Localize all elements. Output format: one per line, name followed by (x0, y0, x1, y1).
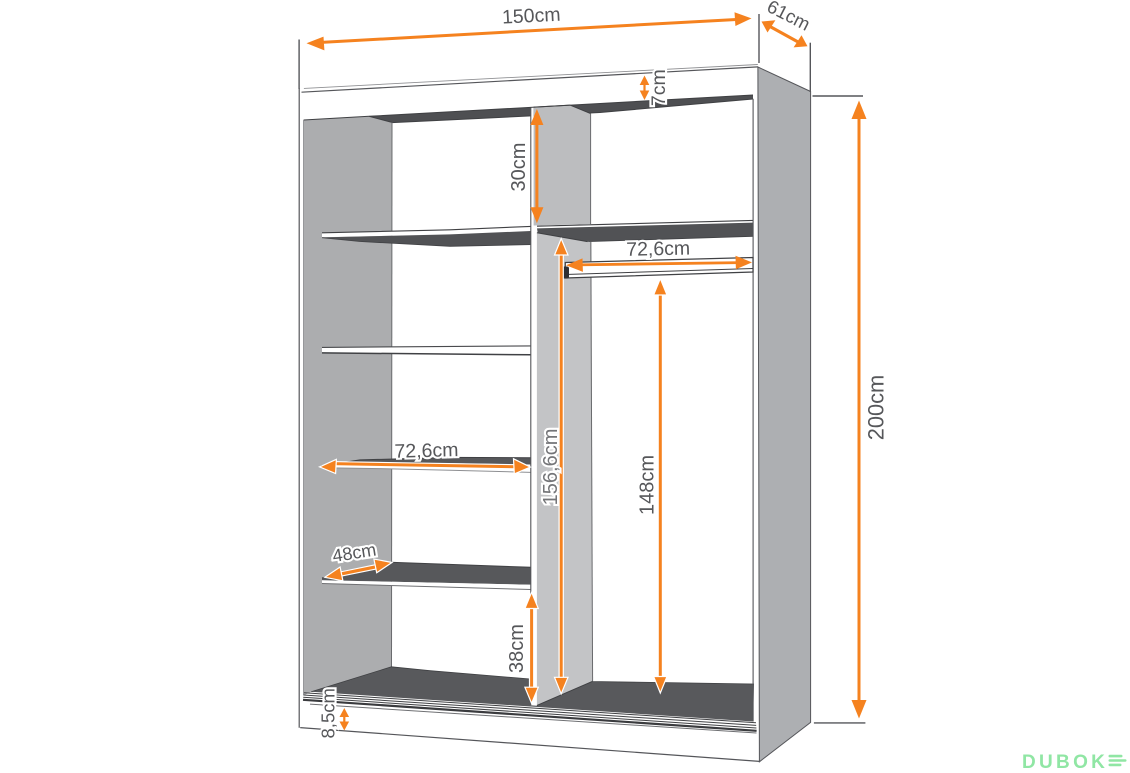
svg-text:72,6cm: 72,6cm (626, 237, 690, 260)
svg-text:72,6cm: 72,6cm (394, 439, 459, 463)
svg-text:7cm: 7cm (648, 69, 670, 106)
svg-text:DUBOK: DUBOK (1022, 752, 1108, 773)
svg-text:38cm: 38cm (506, 624, 528, 673)
svg-text:8,5cm: 8,5cm (318, 688, 339, 738)
svg-text:30cm: 30cm (508, 143, 530, 192)
svg-text:200cm: 200cm (863, 375, 888, 440)
svg-text:150cm: 150cm (501, 4, 561, 29)
svg-text:156,6cm: 156,6cm (540, 429, 562, 506)
svg-text:148cm: 148cm (637, 455, 659, 515)
